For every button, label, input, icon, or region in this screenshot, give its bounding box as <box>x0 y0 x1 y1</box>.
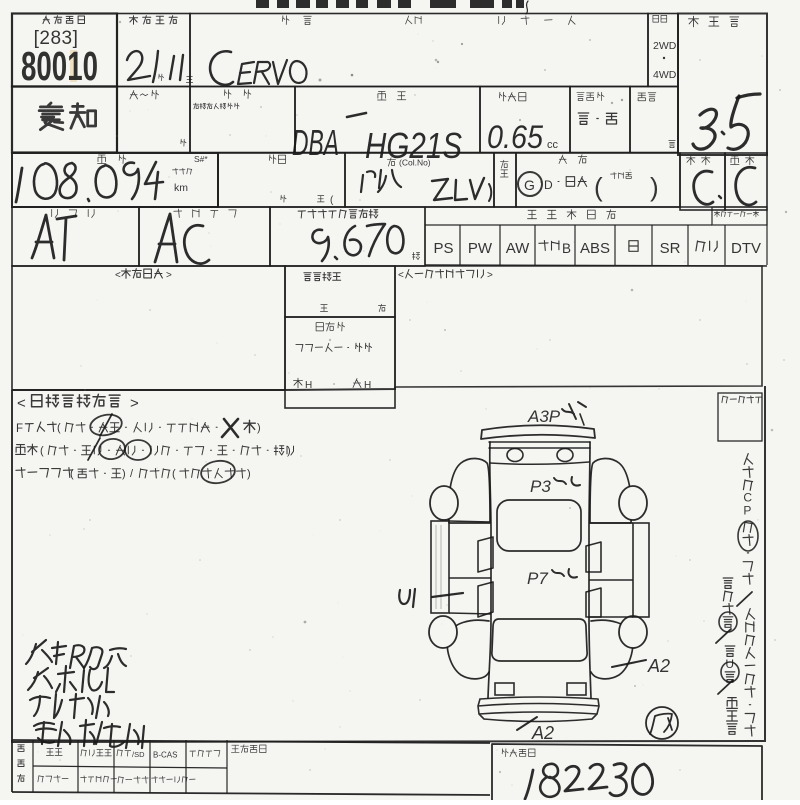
svg-text:/SD: /SD <box>132 750 145 759</box>
svg-text:ABS: ABS <box>580 240 610 257</box>
svg-text:D: D <box>544 178 553 192</box>
svg-text:): ) <box>257 422 261 434</box>
svg-text:<: < <box>115 270 121 281</box>
svg-text:PW: PW <box>468 240 493 257</box>
svg-text:): ) <box>247 468 251 480</box>
svg-text:A2: A2 <box>647 656 670 676</box>
svg-text:P: P <box>743 504 751 518</box>
svg-text:P7: P7 <box>527 569 548 588</box>
svg-text:A3P: A3P <box>527 407 561 426</box>
svg-text:(: ( <box>57 422 61 434</box>
svg-text:A2: A2 <box>531 723 554 743</box>
svg-text:): ) <box>287 445 291 457</box>
svg-text:DTV: DTV <box>731 240 761 257</box>
svg-text:): ) <box>122 468 126 480</box>
svg-text:AW: AW <box>506 240 530 257</box>
svg-text:km: km <box>174 182 188 194</box>
svg-text:<: < <box>17 395 26 412</box>
svg-text:(: ( <box>70 468 74 480</box>
svg-text:): ) <box>650 172 659 202</box>
svg-text:DBA: DBA <box>292 122 339 163</box>
svg-text:S#*: S#* <box>194 154 208 164</box>
svg-text:2WD: 2WD <box>653 40 677 52</box>
svg-text:U: U <box>725 657 734 671</box>
svg-text:P3: P3 <box>530 477 551 496</box>
svg-text:<: < <box>398 270 404 281</box>
svg-text:(: ( <box>172 468 176 480</box>
svg-text:B-CAS: B-CAS <box>153 751 177 760</box>
svg-text:F: F <box>16 423 23 435</box>
svg-text:(: ( <box>40 445 44 457</box>
svg-text:SR: SR <box>660 240 681 257</box>
svg-text:cc: cc <box>547 139 559 151</box>
svg-text:>: > <box>487 270 493 281</box>
svg-text:>: > <box>166 270 172 281</box>
svg-text:G: G <box>524 177 535 193</box>
svg-text:C: C <box>743 491 752 505</box>
svg-text:>: > <box>130 395 139 412</box>
svg-text:(Col.No): (Col.No) <box>399 158 431 168</box>
svg-text:0.65: 0.65 <box>487 119 543 155</box>
svg-text:(: ( <box>594 172 603 202</box>
svg-text:PS: PS <box>433 240 453 257</box>
svg-text:4WD: 4WD <box>653 69 677 81</box>
svg-text:80010: 80010 <box>21 43 98 89</box>
svg-text:B: B <box>562 241 571 256</box>
